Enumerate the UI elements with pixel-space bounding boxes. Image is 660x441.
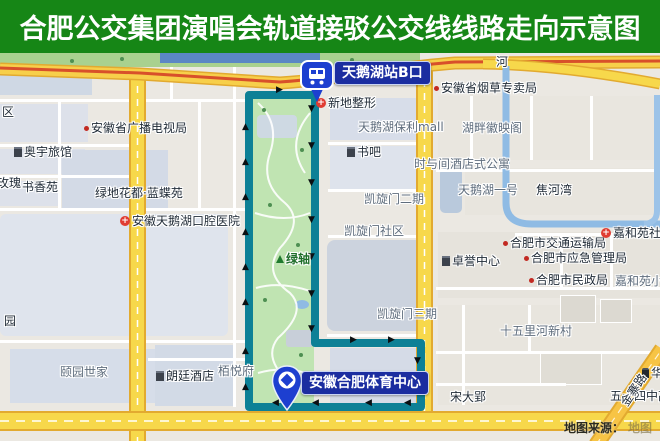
dot-icon — [524, 256, 529, 261]
route-arrow-up: ▲ — [242, 193, 249, 202]
map-label: 凯旋门二期 — [364, 192, 424, 206]
map-source-prefix: 地图来源： — [564, 421, 624, 435]
map-label: 天鹅湖保利mall — [358, 120, 444, 134]
map-label: 安徽省烟草专卖局 — [434, 81, 537, 95]
title-banner: 合肥公交集团演唱会轨道接驳公交线线路走向示意图 — [0, 0, 660, 53]
route-arrow-up: ▲ — [242, 228, 249, 237]
map-label: 玫瑰 — [0, 176, 21, 190]
map-label: 河 — [496, 55, 508, 69]
route-arrow-up: ▲ — [242, 158, 249, 167]
map-canvas[interactable]: ▲▲▲▲▲▲▲▲▼▼▼▼▼▼▼▶▶▶▼▼◀◀◀◀ 区安徽省广播电视局奥宇旅馆玫瑰… — [0, 53, 660, 441]
route-arrow-right: ▶ — [276, 86, 283, 95]
tree-icon — [276, 255, 284, 263]
dot-icon — [434, 86, 439, 91]
route-arrow-down: ▼ — [308, 325, 315, 334]
metro-station-marker[interactable] — [299, 59, 335, 103]
map-label: 奥宇旅馆 — [14, 145, 72, 159]
route-arrow-up: ▲ — [242, 263, 249, 272]
map-label: 凯旋门三期 — [377, 307, 437, 321]
dot-icon — [529, 278, 534, 283]
route-arrow-left: ◀ — [365, 399, 372, 408]
route-arrow-up: ▲ — [242, 298, 249, 307]
route-arrow-down: ▼ — [308, 142, 315, 151]
map-label: 合肥市应急管理局 — [524, 251, 627, 265]
map-label: 绿地花都·蓝蝶苑 — [95, 186, 183, 200]
building-icon — [347, 147, 355, 157]
building-icon — [156, 371, 164, 381]
map-label: 十五里河新村 — [500, 324, 572, 338]
dot-icon — [84, 126, 89, 131]
cross-icon: + — [601, 228, 611, 238]
map-label: +安徽天鹅湖口腔医院 — [120, 214, 240, 228]
map-label: 卓誉中心 — [442, 254, 500, 268]
map-label: 凯旋门社区 — [344, 224, 404, 238]
map-label: 嘉和苑小区 — [615, 274, 660, 288]
map-label: 宋大郢 — [450, 390, 486, 404]
map-label: 安徽省广播电视局 — [84, 121, 187, 135]
route-arrow-left: ◀ — [404, 399, 411, 408]
map-label: +嘉和苑社区 — [601, 226, 660, 240]
destination-label[interactable]: 安徽合肥体育中心 — [301, 371, 429, 395]
route-arrow-down: ▼ — [414, 357, 421, 366]
map-label: 合肥市交通运输局 — [503, 236, 606, 250]
map-label: 绿轴 — [276, 252, 310, 266]
map-label: 天鹅湖一号 — [458, 183, 518, 197]
route-arrow-up: ▲ — [242, 123, 249, 132]
route-arrow-down: ▼ — [308, 290, 315, 299]
map-label: 焦河湾 — [536, 183, 572, 197]
route-arrow-left: ◀ — [312, 399, 319, 408]
route-arrow-up: ▲ — [242, 383, 249, 392]
map-label: 栢悦府 — [218, 364, 254, 378]
map-label: 颐园世家 — [60, 365, 108, 379]
map-label: 书香苑 — [22, 180, 58, 194]
route-arrow-down: ▼ — [308, 105, 315, 114]
map-label: 合肥市民政局 — [529, 273, 608, 287]
route-arrow-up: ▲ — [242, 347, 249, 356]
map-label: 区 — [2, 105, 14, 119]
building-icon — [14, 147, 22, 157]
map-source-suffix: 地图 — [628, 421, 652, 435]
destination-marker[interactable] — [269, 364, 305, 412]
route-arrow-down: ▼ — [308, 216, 315, 225]
route-map-infographic: 合肥公交集团演唱会轨道接驳公交线线路走向示意图 — [0, 0, 660, 441]
page-title: 合肥公交集团演唱会轨道接驳公交线线路走向示意图 — [20, 7, 641, 46]
map-label: 书吧 — [347, 145, 381, 159]
route-arrow-right: ▶ — [350, 336, 357, 345]
map-label: 湖畔徽映阁 — [462, 121, 522, 135]
map-source-credit: 地图来源：地图 — [564, 419, 652, 436]
map-label: 朗廷酒店 — [156, 369, 214, 383]
map-label: 时与间酒店式公寓 — [414, 157, 510, 171]
route-arrow-down: ▼ — [308, 179, 315, 188]
station-label[interactable]: 天鹅湖站B口 — [334, 61, 431, 85]
map-label: 园 — [4, 314, 16, 328]
cross-icon: + — [120, 216, 130, 226]
route-arrow-right: ▶ — [388, 336, 395, 345]
dot-icon — [503, 241, 508, 246]
building-icon — [442, 256, 450, 266]
